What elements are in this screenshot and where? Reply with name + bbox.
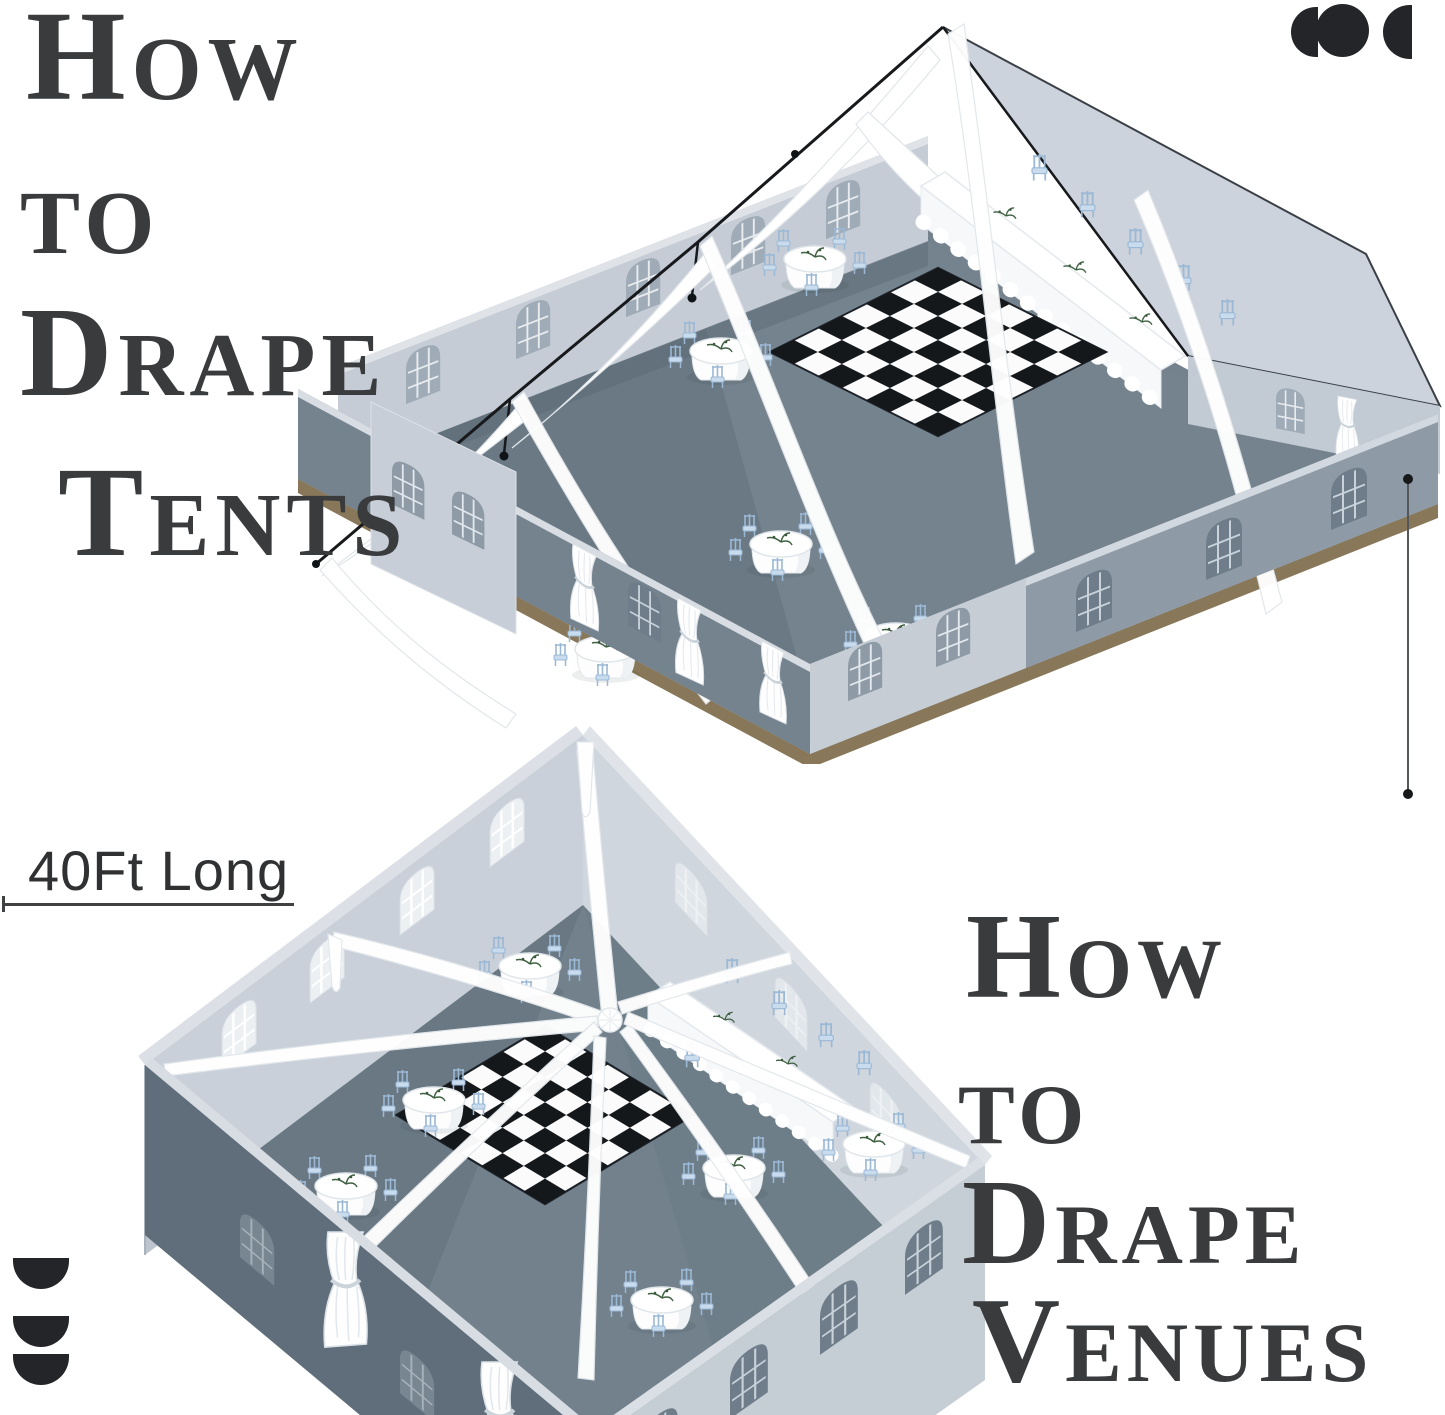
venue-front-left-wall xyxy=(145,1057,600,1415)
tent-roof-panel xyxy=(943,27,1440,406)
banquet-table xyxy=(921,154,1235,408)
logo-semicircle-icon xyxy=(1291,7,1318,57)
tent-back-wall xyxy=(338,136,928,472)
venue-left-outer-wall xyxy=(145,915,345,1255)
drape-anchor-dot xyxy=(791,150,799,158)
half-disc-icon xyxy=(13,1316,69,1347)
round-table xyxy=(788,1328,891,1397)
title-venues-line-1: How xyxy=(966,896,1227,1018)
round-table xyxy=(294,1154,397,1223)
title-venues-line-3: Drape xyxy=(962,1162,1307,1284)
venue-front-right-wall xyxy=(588,1157,985,1415)
venue-floor xyxy=(145,905,985,1415)
dimension-endpoint-dot xyxy=(1403,474,1413,484)
round-table xyxy=(610,1268,713,1337)
round-table xyxy=(554,617,657,686)
venue-dance-floor xyxy=(397,1026,694,1204)
round-table xyxy=(682,1136,785,1205)
title-venues-line-4: Venues xyxy=(972,1280,1374,1402)
title-venues-line-2: to xyxy=(958,1042,1089,1164)
tent-dance-floor xyxy=(770,268,1107,436)
round-table xyxy=(382,1068,485,1137)
title-tents-line-3: Drape xyxy=(20,288,387,416)
title-tents-line-4: Tents xyxy=(58,448,408,576)
venue-upper-left-wall xyxy=(145,735,583,1235)
half-disc-icon xyxy=(13,1354,69,1385)
tent-floor-shadow-back xyxy=(338,242,928,482)
round-table xyxy=(1136,525,1239,594)
drape-anchor-dot xyxy=(500,452,509,461)
round-table xyxy=(478,934,581,1003)
length-dimension-label: 40Ft Long xyxy=(28,838,289,903)
venue-upper-right-wall xyxy=(583,735,985,1335)
draped-tent-illustration xyxy=(276,4,1445,764)
drape-anchor-dot xyxy=(688,294,697,303)
length-dimension-line xyxy=(2,903,294,906)
logo-circle-icon xyxy=(1316,4,1369,57)
round-table xyxy=(729,512,832,581)
tent-floor-shadow xyxy=(338,329,816,726)
venue-drape-knot xyxy=(598,1008,622,1032)
round-table xyxy=(844,604,947,673)
tent-swag-drapes xyxy=(322,46,1036,576)
round-table xyxy=(763,227,866,296)
infographic-canvas: How to Drape Tents How to Drape Venues 4… xyxy=(0,0,1445,1415)
venue-banquet-table xyxy=(648,958,871,1158)
venue-floor-shadow xyxy=(583,905,985,1370)
title-tents-line-1: How xyxy=(26,0,304,120)
venue-floor-shadow xyxy=(145,905,583,1360)
logo-semicircle-icon xyxy=(1383,5,1412,59)
tent-floor xyxy=(338,242,1404,726)
dimension-endpoint-dot xyxy=(1403,789,1413,799)
tent-platform-edge xyxy=(298,479,1438,764)
tent-sweep-drapes xyxy=(320,24,1282,728)
tent-truss-lines xyxy=(316,27,1188,564)
venue-wall-top-band xyxy=(583,726,992,1165)
height-dimension-line xyxy=(1407,479,1409,793)
tent-front-right-wall xyxy=(810,414,1438,754)
tent-right-inner-wall xyxy=(1188,356,1440,474)
round-table xyxy=(669,319,772,388)
tent-platform xyxy=(298,229,1438,754)
draped-venue-illustration xyxy=(100,720,1030,1415)
half-disc-icon xyxy=(13,1258,69,1289)
title-tents-line-2: to xyxy=(20,146,160,274)
round-table xyxy=(822,1112,925,1181)
